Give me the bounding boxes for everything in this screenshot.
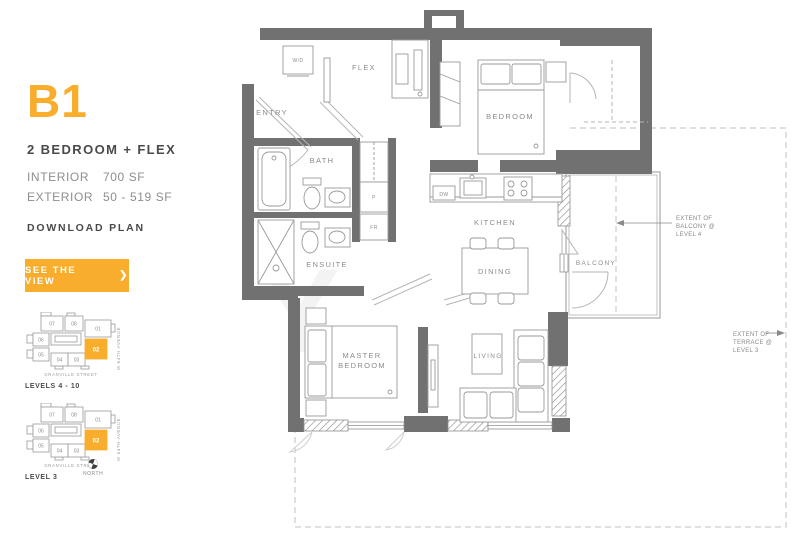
balcony-railing (566, 172, 660, 318)
avenue-label: W 64TH AVENUE (116, 418, 121, 461)
keyplan-levels-4-10[interactable]: 07 08 01 06 05 04 03 02 GRANVILLE STREET… (25, 312, 137, 385)
unit-number: 04 (57, 358, 63, 364)
room-label-bath: BATH (310, 156, 335, 165)
unit-number: 01 (95, 418, 101, 424)
unit-number: 08 (71, 413, 77, 419)
unit-number: 06 (38, 429, 44, 435)
annotation-line: EXTENT OF (733, 332, 769, 338)
annotation-line: BALCONY @ (676, 224, 715, 230)
room-label-dining: DINING (478, 267, 512, 276)
avenue-label: W 64TH AVENUE (116, 327, 121, 370)
spec-label: EXTERIOR (27, 187, 99, 207)
room-label-wd: W/D (293, 58, 304, 64)
room-label-living: LIVING (473, 353, 502, 360)
unit-number: 01 (95, 327, 101, 333)
spec-value: 50 - 519 SF (103, 190, 172, 204)
room-label-dw: DW (439, 192, 448, 198)
room-label-flex: FLEX (352, 63, 376, 72)
room-label-ensuite: ENSUITE (306, 260, 348, 269)
spec-list: INTERIOR 700 SF EXTERIOR 50 - 519 SF (27, 167, 172, 207)
room-label-entry: ENTRY (256, 108, 288, 117)
keyplan-level-3[interactable]: 07 08 01 06 05 04 03 02 GRANVILLE STREET… (25, 403, 137, 476)
annotation-line: LEVEL 4 (676, 232, 702, 238)
unit-number: 07 (49, 413, 55, 419)
room-label-kitchen: KITCHEN (474, 218, 516, 227)
arrow-right-icon (777, 330, 785, 336)
annotation-line: EXTENT OF (676, 216, 712, 222)
annotation-terrace-extent: EXTENT OF TERRACE @ LEVEL 3 (733, 330, 785, 354)
unit-number: 06 (38, 338, 44, 344)
unit-number: 05 (38, 353, 44, 359)
floorplan-drawing: Y (240, 0, 800, 548)
spec-label: INTERIOR (27, 167, 99, 187)
north-compass-icon (87, 457, 99, 469)
room-label-fridge: FR (370, 225, 377, 231)
annotation-balcony-extent: EXTENT OF BALCONY @ LEVEL 4 (616, 216, 715, 238)
keyplan-building-map: 07 08 01 06 05 04 03 02 GRANVILLE STREET… (25, 403, 125, 471)
room-label-master-line2: BEDROOM (338, 361, 386, 370)
unit-number: 04 (57, 449, 63, 455)
see-the-view-button[interactable]: SEE THE VIEW ❯ (25, 259, 129, 292)
keyplan-caption: LEVELS 4 - 10 (25, 383, 80, 390)
unit-number: 08 (71, 322, 77, 328)
room-label-bedroom: BEDROOM (486, 112, 534, 121)
page-title: B1 (27, 74, 88, 128)
north-label: NORTH (83, 471, 103, 477)
see-the-view-label: SEE THE VIEW (25, 265, 110, 287)
room-label-pantry: P (372, 195, 376, 201)
chevron-right-icon: ❯ (119, 270, 129, 281)
unit-number-highlighted: 02 (93, 348, 100, 354)
unit-number: 07 (49, 322, 55, 328)
spec-row-exterior: EXTERIOR 50 - 519 SF (27, 187, 172, 207)
unit-number: 03 (74, 449, 80, 455)
keyplan-building-map: 07 08 01 06 05 04 03 02 GRANVILLE STREET… (25, 312, 125, 380)
annotation-line: TERRACE @ (733, 340, 772, 346)
unit-number: 05 (38, 444, 44, 450)
download-plan-link[interactable]: DOWNLOAD PLAN (27, 222, 145, 234)
room-label-balcony: BALCONY (576, 260, 616, 267)
unit-number: 03 (74, 358, 80, 364)
keyplan-caption: LEVEL 3 (25, 474, 57, 481)
spec-row-interior: INTERIOR 700 SF (27, 167, 172, 187)
spec-value: 700 SF (103, 170, 145, 184)
plan-name: 2 BEDROOM + FLEX (27, 142, 176, 157)
unit-number-highlighted: 02 (93, 439, 100, 445)
annotation-line: LEVEL 3 (733, 348, 759, 354)
arrow-left-icon (616, 220, 624, 226)
room-label-master-line1: MASTER (342, 351, 381, 360)
street-label: GRANVILLE STREET (44, 372, 97, 377)
